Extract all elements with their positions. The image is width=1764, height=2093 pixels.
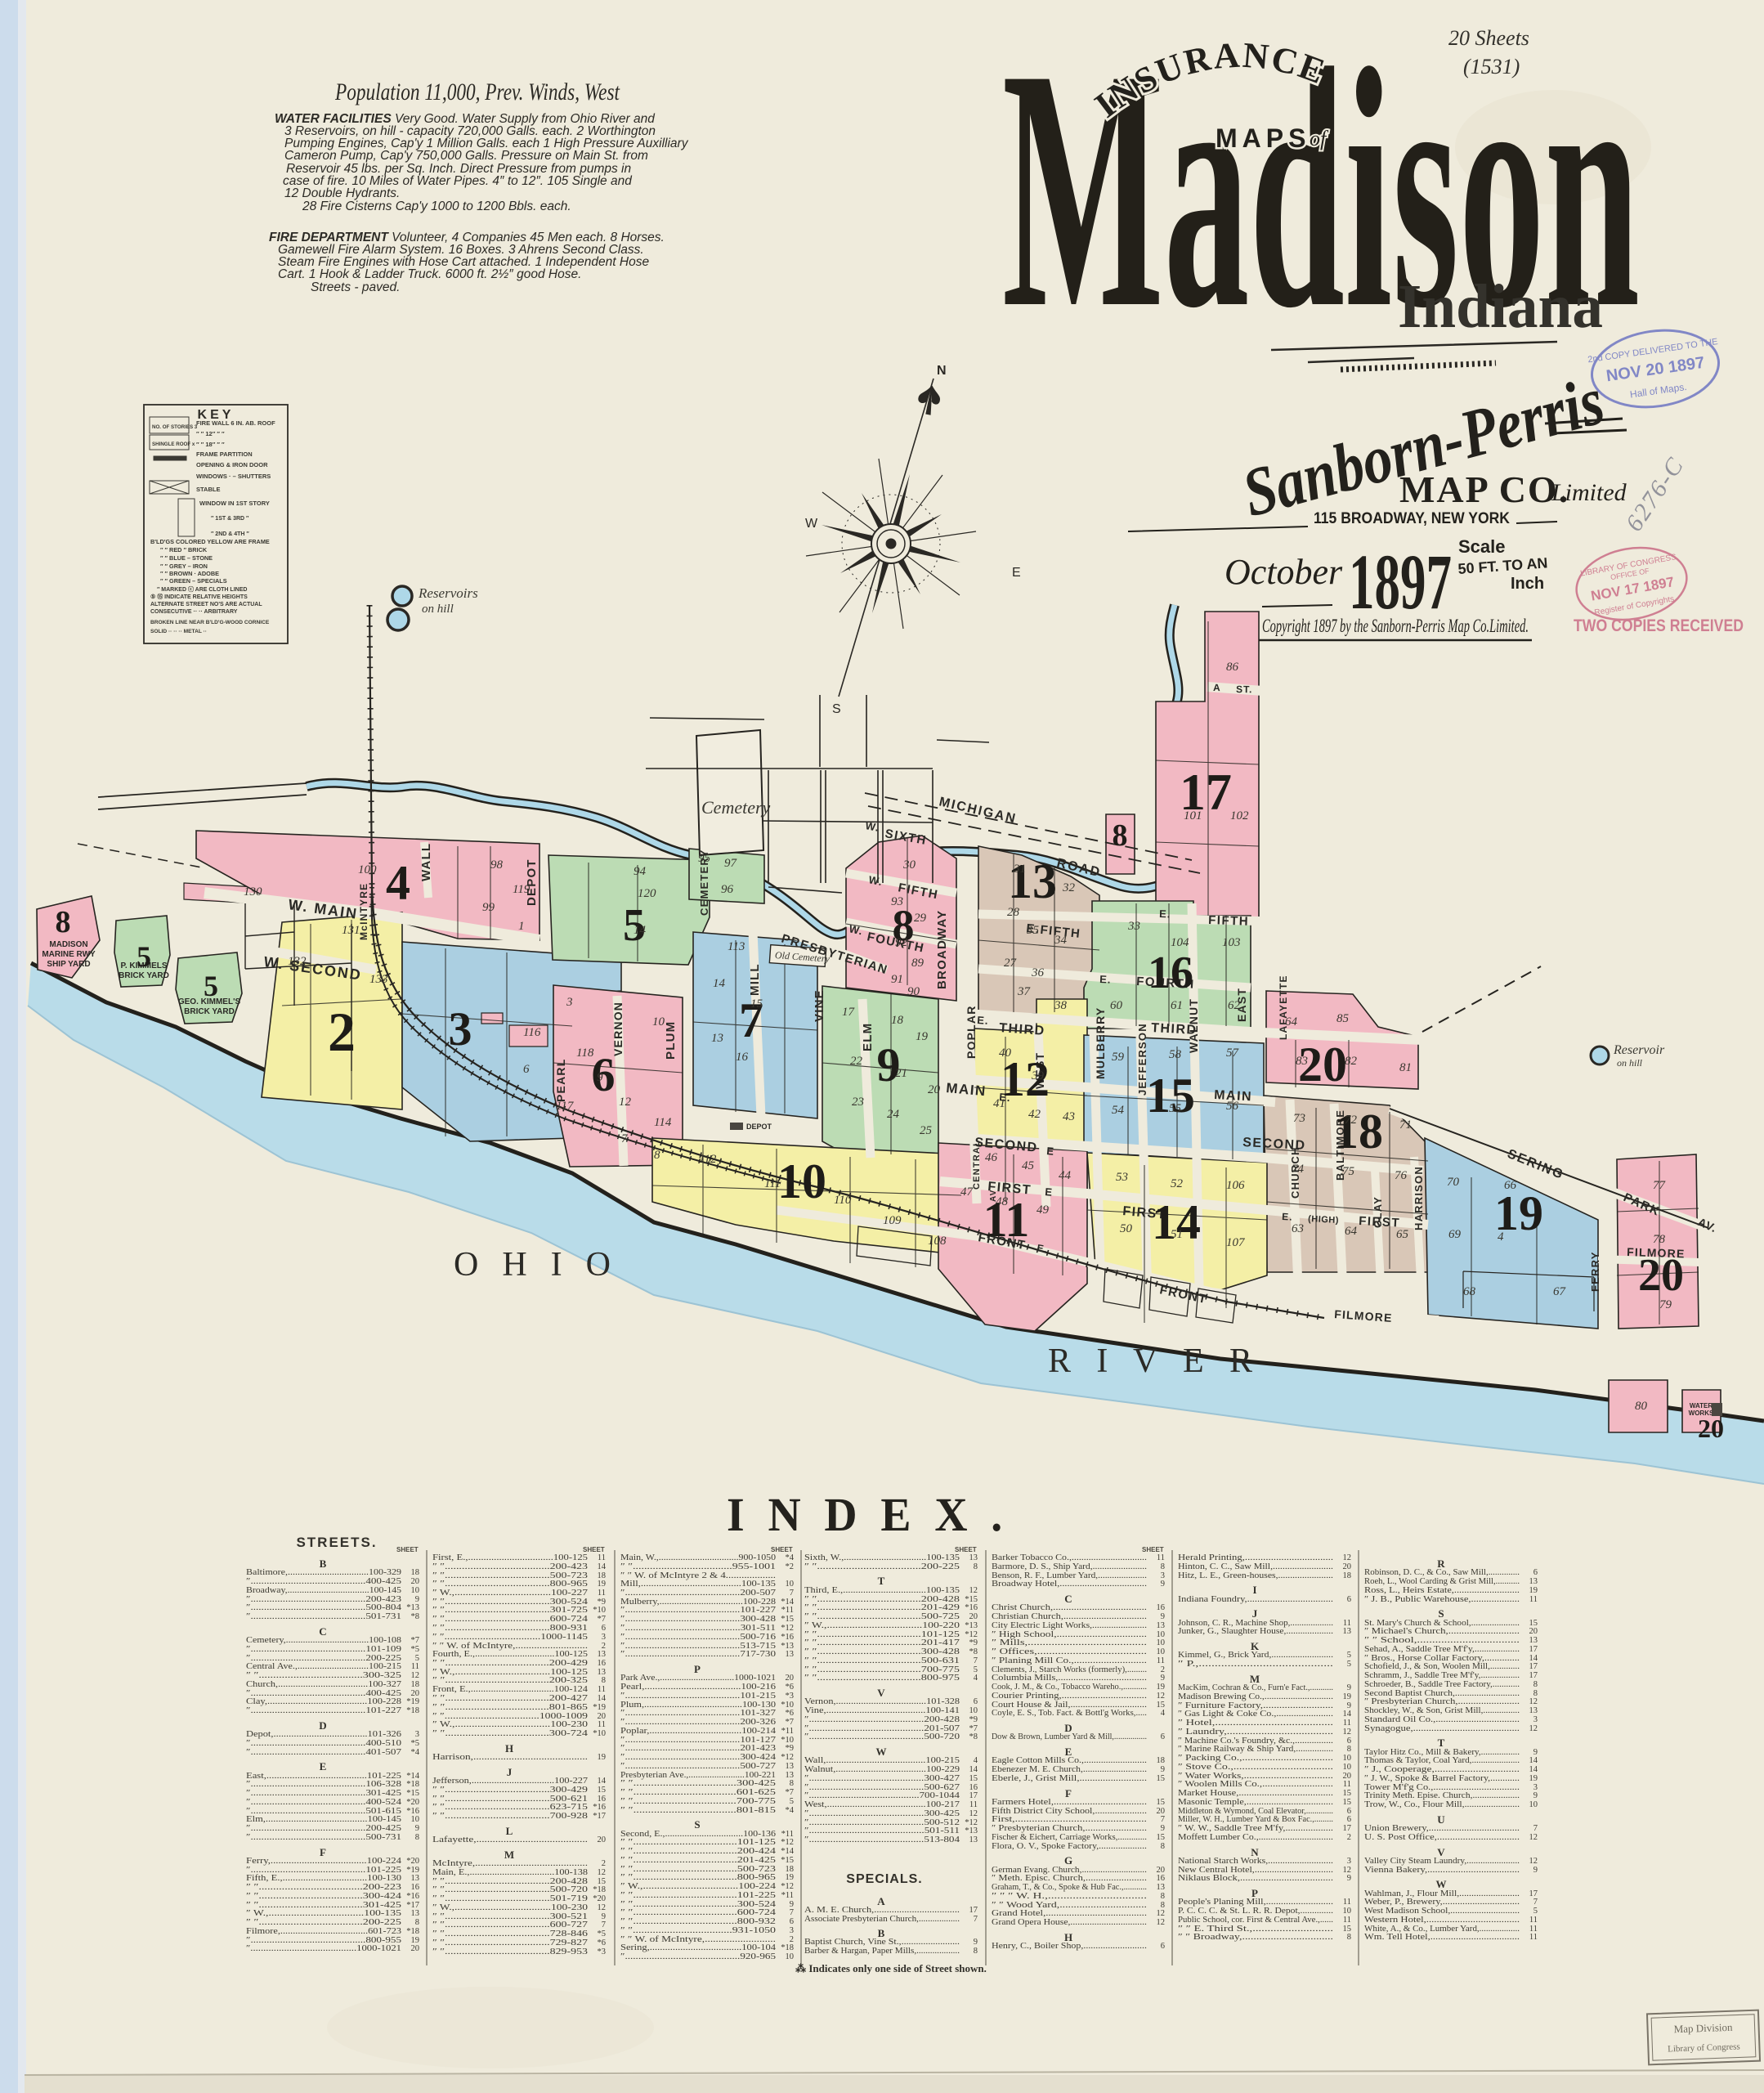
svg-text:70: 70 [1447,1176,1460,1189]
svg-text:15: 15 [1157,1833,1166,1842]
svg-text:Schroeder, B., Saddle Tree Fac: Schroeder, B., Saddle Tree Factory,.....… [1364,1680,1520,1689]
svg-text:10: 10 [1343,1763,1352,1772]
svg-text:*12: *12 [781,1882,794,1891]
svg-text:SHIP YARD: SHIP YARD [47,960,90,969]
svg-text:12: 12 [1343,1728,1352,1737]
svg-text:ST.: ST. [1236,683,1253,695]
svg-text:Market House,.................: Market House,...........................… [1178,1789,1333,1798]
svg-text:8: 8 [1113,818,1128,853]
svg-text:*8: *8 [411,1612,420,1621]
svg-text:on hill: on hill [422,603,454,616]
svg-text:11: 11 [1529,1916,1538,1925]
svg-text:*6: *6 [786,1709,795,1718]
svg-text:29: 29 [914,912,927,925]
svg-text:″ ″.........................: ″ ″....................................2… [804,1603,960,1612]
svg-text:Graham, T., & Co., Spoke & Hub: Graham, T., & Co., Spoke & Hub Fac.,....… [992,1883,1147,1892]
svg-text:42: 42 [1028,1108,1041,1121]
svg-text:*5: *5 [411,1645,420,1654]
svg-text:8: 8 [1161,1562,1165,1571]
svg-text:SHEET: SHEET [396,1546,419,1553]
svg-text:″.............................: ″.......................................… [620,1589,776,1598]
svg-text:″ ″ BROWN · ADOBE: ″ ″ BROWN · ADOBE [160,570,219,577]
svg-text:″ ″.........................: ″ ″....................................6… [620,1908,777,1917]
svg-text:*3: *3 [598,1947,607,1956]
svg-text:6: 6 [790,1917,794,1926]
svg-text:First,........................: First,..................................… [992,1815,1147,1824]
svg-text:″ ″.........................: ″ ″.....................................… [432,1624,588,1633]
svg-text:*6: *6 [786,1683,795,1692]
svg-text:14: 14 [634,924,647,937]
svg-text:9: 9 [597,1071,603,1084]
svg-text:″.............................: ″.......................................… [246,1833,401,1842]
svg-text:106: 106 [1226,1179,1245,1192]
svg-text:43: 43 [1063,1110,1075,1123]
svg-text:CONSECUTIVE ·· ·· AR: CONSECUTIVE ·· ·· ARBITRARY [150,609,238,615]
svg-text:*11: *11 [781,1606,794,1615]
svg-text:SHEET: SHEET [955,1546,977,1553]
svg-text:17: 17 [842,1006,856,1019]
svg-text:Cart. 1 Hook & Ladder Truck.: Cart. 1 Hook & Ladder Truck. 6000 ft. 2½… [278,267,581,281]
svg-text:McIntyre,.....................: McIntyre,...............................… [432,1859,588,1868]
svg-text:Valley City Steam Laundry,....: Valley City Steam Laundry,..............… [1364,1857,1520,1866]
svg-text:City Electric Light Works,....: City Electric Light Works,..............… [992,1621,1147,1630]
svg-text:15: 15 [1157,1798,1166,1807]
svg-text:E.: E. [1099,973,1112,986]
svg-text:9: 9 [415,1824,419,1833]
svg-text:17: 17 [969,1791,978,1800]
svg-text:*20: *20 [406,1798,419,1807]
svg-text:on hill: on hill [1617,1057,1643,1069]
svg-text:*19: *19 [593,1703,606,1712]
svg-text:17: 17 [969,1906,978,1915]
svg-text:8: 8 [1347,1745,1351,1754]
svg-text:52: 52 [1171,1177,1184,1190]
svg-text:W.: W. [864,819,880,834]
svg-text:46: 46 [985,1151,998,1164]
svg-text:15: 15 [598,1786,607,1795]
svg-text:12: 12 [1529,1833,1538,1842]
svg-text:10: 10 [786,1580,795,1589]
svg-text:U. S. Post Office,............: U. S. Post Office,......................… [1364,1833,1520,1842]
svg-text:″ W.,.......................: ″ W.,...................................… [432,1589,588,1598]
svg-text:″ ″.........................: ″ ″.....................................… [432,1615,589,1624]
svg-text:20: 20 [1343,1562,1352,1571]
svg-text:64: 64 [1345,1225,1358,1238]
svg-text:Dow & Brown, Lumber Yard & Mil: Dow & Brown, Lumber Yard & Mill,........… [992,1732,1147,1741]
svg-text:4: 4 [974,1674,978,1683]
svg-text:Wall,.........................: Wall,...................................… [804,1756,960,1765]
svg-text:10: 10 [777,1154,826,1208]
svg-text:E.: E. [977,1014,989,1027]
svg-text:5: 5 [1347,1660,1351,1669]
svg-text:A. M. E. Church,..............: A. M. E. Church,........................… [804,1906,960,1915]
svg-text:5: 5 [137,940,151,973]
svg-text:83: 83 [1296,1055,1308,1068]
svg-text:3: 3 [1533,1715,1538,1724]
svg-text:20: 20 [1638,1250,1684,1301]
svg-text:11: 11 [598,1685,606,1694]
svg-text:38: 38 [1054,999,1068,1012]
svg-text:Henry, C., Boiler Shop,.......: Henry, C., Boiler Shop,.................… [992,1942,1147,1951]
svg-text:W: W [805,517,818,531]
svg-text:11: 11 [1343,1719,1351,1728]
svg-text:24: 24 [887,1108,900,1121]
svg-text:″ P.,.......................: ″ P.,...................................… [1178,1660,1333,1669]
svg-text:130: 130 [244,885,262,899]
svg-text:″ Stove Co.,.................: ″ Stove Co.,............................… [1178,1763,1333,1772]
svg-text:13: 13 [598,1650,607,1659]
svg-text:54: 54 [1112,1104,1125,1117]
svg-text:8: 8 [974,1562,978,1571]
svg-text:Cemetery: Cemetery [701,797,771,818]
svg-text:″ ″........................: ″ ″...................................80… [620,1806,776,1815]
svg-text:2: 2 [328,1001,356,1063]
svg-text:″ Michael's Church,..........: ″ Michael's Church,.....................… [1364,1627,1520,1636]
svg-text:MARINE RWY: MARINE RWY [42,950,96,959]
svg-text:*7: *7 [598,1615,607,1624]
svg-text:18: 18 [1334,1105,1383,1159]
svg-text:6: 6 [592,1048,616,1101]
svg-text:A: A [1213,682,1221,693]
svg-text:113: 113 [728,940,745,953]
svg-text:″.............................: ″.......................................… [620,1762,776,1771]
svg-text:″ ″.........................: ″ ″...................................10… [432,1633,588,1642]
svg-text:*9: *9 [969,1715,978,1724]
svg-text:(HIGH): (HIGH) [1308,1214,1339,1226]
svg-text:8: 8 [654,1149,660,1162]
svg-text:Standard Oil Co.,.............: Standard Oil Co.,.......................… [1364,1715,1520,1724]
svg-text:E: E [1012,566,1021,580]
svg-text:″.............................: ″.......................................… [620,1709,776,1718]
svg-text:7: 7 [1161,1815,1165,1824]
svg-text:*18: *18 [781,1943,794,1952]
svg-text:19: 19 [1529,1774,1538,1783]
svg-text:20: 20 [786,1674,795,1683]
svg-text:Sixth, W.,....................: Sixth, W.,..............................… [804,1553,960,1562]
svg-text:7: 7 [790,1908,794,1917]
svg-text:11: 11 [1529,1933,1538,1942]
svg-text:95: 95 [698,852,711,865]
svg-text:″ ″.........................: ″ ″....................................3… [246,1892,402,1901]
svg-text:Reservoirs: Reservoirs [418,585,478,601]
svg-text:″ ″ GREY – IRON: ″ ″ GREY – IRON [160,562,208,570]
svg-text:″ 1ST & 3RD ″: ″ 1ST & 3RD ″ [211,516,249,522]
svg-text:*4: *4 [786,1806,795,1815]
svg-text:37: 37 [1017,985,1032,998]
svg-text:*16: *16 [965,1603,978,1612]
svg-text:13: 13 [1343,1627,1352,1636]
svg-text:14: 14 [598,1777,607,1786]
svg-text:12 Double Hydrants.: 12 Double Hydrants. [284,186,400,200]
svg-text:91: 91 [891,973,903,986]
svg-text:3: 3 [449,1002,472,1055]
svg-text:18: 18 [891,1014,904,1027]
svg-text:14: 14 [598,1694,607,1703]
svg-text:*3: *3 [786,1692,795,1701]
svg-text:″.............................: ″.......................................… [246,1944,401,1953]
svg-text:14: 14 [1152,1195,1201,1249]
svg-text:18: 18 [411,1568,420,1577]
svg-text:″.............................: ″.......................................… [246,1739,401,1748]
svg-text:25: 25 [920,1124,933,1137]
svg-text:″.............................: ″.......................................… [246,1789,401,1798]
svg-text:″ ″.........................: ″ ″....................................8… [620,1917,776,1926]
svg-text:Indiana: Indiana [1398,272,1603,341]
svg-text:″ W.,.......................: ″ W.,..................................1… [432,1720,588,1729]
svg-text:11: 11 [1157,1553,1165,1562]
svg-text:15: 15 [969,1774,978,1783]
svg-text:*11: *11 [781,1891,794,1900]
svg-text:109: 109 [883,1214,902,1227]
svg-text:″ ″.........................: ″ ″....................................8… [620,1873,776,1882]
svg-text:″.............................: ″.......................................… [804,1826,960,1835]
svg-text:OPENING & IRON DOOR: OPENING & IRON DOOR [196,461,268,468]
svg-text:MULBERRY: MULBERRY [1094,1007,1107,1079]
svg-text:102: 102 [1230,809,1249,822]
svg-text:West,.........................: West,...................................… [804,1800,960,1809]
svg-text:⁂ Indicates only one side of S: ⁂ Indicates only one side of Street show… [795,1962,987,1974]
svg-text:″ W.,.......................: ″ W.,..................................1… [620,1882,777,1891]
svg-text:″.............................: ″.......................................… [804,1774,960,1783]
svg-text:Central Ave.,.................: Central Ave.,...........................… [246,1662,401,1671]
svg-text:*4: *4 [411,1748,420,1757]
svg-text:″ W. W., Saddle Tree M'fy,...: ″ W. W., Saddle Tree M'fy,..............… [1178,1824,1333,1833]
svg-text:″ ″ RED ″ BRICK: ″ ″ RED ″ BRICK [160,546,208,554]
svg-text:103: 103 [1222,936,1241,949]
svg-text:94: 94 [634,865,647,878]
svg-text:17: 17 [1529,1671,1538,1680]
svg-text:″ J., Cooperage,.............: ″ J., Cooperage,........................… [1364,1765,1520,1774]
svg-text:40: 40 [999,1046,1012,1060]
svg-text:″ ″.........................: ″ ″....................................2… [432,1659,588,1668]
svg-text:61: 61 [1171,999,1183,1012]
svg-text:Flora, O. V., Spoke Factory,..: Flora, O. V., Spoke Factory,............… [992,1842,1147,1851]
svg-text:″ J. B., Public Warehouse,...: ″ J. B., Public Warehouse,..............… [1364,1595,1520,1604]
svg-text:112: 112 [699,1153,717,1166]
svg-text:Harrison,.....................: Harrison,...............................… [432,1753,588,1762]
svg-text:T: T [1438,1737,1445,1749]
svg-text:72: 72 [1345,1114,1358,1127]
svg-text:Fifth, E.,....................: Fifth, E.,..............................… [246,1874,401,1883]
svg-text:16: 16 [1157,1874,1166,1883]
svg-text:People's Planing Mill,........: People's Planing Mill,..................… [1178,1898,1333,1907]
svg-text:Weber, P., Brewery,...........: Weber, P., Brewery,.....................… [1364,1898,1520,1907]
svg-text:Grand Hotel,..................: Grand Hotel,............................… [992,1909,1147,1918]
svg-text:7: 7 [1533,1824,1538,1833]
svg-text:″.............................: ″.......................................… [620,1718,776,1727]
svg-text:76: 76 [1395,1169,1408,1182]
svg-text:*11: *11 [781,1727,794,1736]
svg-text:*13: *13 [965,1826,978,1835]
svg-text:41: 41 [993,1097,1005,1110]
svg-text:G: G [1064,1854,1072,1867]
svg-text:Filmore,......................: Filmore,................................… [246,1927,401,1936]
svg-text:3: 3 [1347,1857,1351,1866]
svg-text:69: 69 [1448,1228,1462,1241]
svg-text:*14: *14 [781,1847,795,1856]
svg-text:Western Hotel,................: Western Hotel,..........................… [1364,1916,1520,1925]
svg-text:110: 110 [834,1194,852,1207]
svg-text:Eberle, J., Grist Mill,.......: Eberle, J., Grist Mill,.................… [992,1774,1147,1783]
svg-text:28: 28 [1007,906,1020,919]
svg-text:E: E [1045,1185,1054,1199]
svg-text:57: 57 [1226,1046,1240,1060]
svg-text:*12: *12 [781,1624,794,1633]
svg-text:S: S [694,1818,700,1831]
svg-text:Front, E.,....................: Front, E.,..............................… [432,1685,589,1694]
svg-text:9: 9 [877,1038,901,1091]
svg-text:14: 14 [713,977,726,990]
svg-text:8: 8 [415,1833,419,1842]
svg-text:″ ″.........................: ″ ″.....................................… [432,1812,588,1821]
svg-text:DEPOT: DEPOT [746,1123,772,1131]
svg-text:80: 80 [1635,1400,1648,1413]
svg-text:77: 77 [1653,1179,1667,1192]
svg-text:Sering,.......................: Sering,.................................… [620,1943,777,1952]
svg-text:2: 2 [602,1859,606,1868]
svg-text:Walnut,.......................: Walnut,.................................… [804,1765,960,1774]
svg-text:5: 5 [1533,1907,1538,1916]
svg-text:BROADWAY: BROADWAY [935,910,949,989]
svg-text:″ ″.........................: ″ ″....................................8… [804,1674,960,1683]
svg-text:14: 14 [1529,1756,1538,1765]
svg-text:64: 64 [1285,1015,1298,1029]
svg-text:Third, E.,....................: Third, E.,..............................… [804,1586,960,1595]
svg-text:18: 18 [411,1680,420,1689]
svg-text:14: 14 [969,1765,978,1774]
svg-text:10: 10 [411,1586,420,1595]
svg-text:Main, E.,.....................: Main, E.,...............................… [432,1868,588,1877]
svg-text:FIFTH: FIFTH [1208,913,1250,929]
svg-text:16: 16 [598,1659,607,1668]
svg-text:9: 9 [1347,1874,1351,1883]
svg-text:Schramm, J., Saddle Tree M'f'y: Schramm, J., Saddle Tree M'f'y,.........… [1364,1671,1520,1680]
svg-text:Thomas & Taylor, Coal Yard,...: Thomas & Taylor, Coal Yard,.............… [1364,1756,1520,1765]
svg-text:″ ″ School,................: ″ ″ School,.............................… [1364,1636,1520,1645]
svg-text:Cook, J. M., & Co., Tobacco Wa: Cook, J. M., & Co., Tobacco Wareho.,....… [992,1683,1147,1692]
svg-text:SHEET: SHEET [1142,1546,1164,1553]
svg-text:″.............................: ″.......................................… [246,1577,401,1586]
svg-text:33: 33 [1127,920,1140,933]
svg-text:9: 9 [1533,1866,1538,1875]
svg-text:12: 12 [1529,1724,1538,1733]
svg-text:*16: *16 [593,1803,606,1812]
svg-text:28 Fire Cisterns Cap'y 1000 to: 28 Fire Cisterns Cap'y 1000 to 1200 Bbls… [302,199,571,213]
svg-text:Main, W.,.....................: Main, W.,...............................… [620,1553,776,1562]
svg-text:″ ″.........................: ″ ″.....................................… [432,1938,588,1947]
svg-text:12: 12 [619,1096,632,1109]
svg-text:16: 16 [736,1051,749,1064]
svg-text:9: 9 [1347,1683,1351,1692]
svg-text:″ ″ 18″ ″ ″: ″ ″ 18″ ″ ″ [196,441,225,448]
svg-text:″ Marine Railway & Ship Yard,: ″ Marine Railway & Ship Yard,...........… [1178,1745,1333,1754]
svg-text:″ 2ND & 4TH ″: ″ 2ND & 4TH ″ [211,531,249,537]
svg-text:Cameron Pump, Cap'y 750,000 Ga: Cameron Pump, Cap'y 750,000 Galls. Press… [284,149,648,163]
svg-text:*12: *12 [781,1838,794,1847]
svg-text:″ ″........................: ″ ″...................................70… [620,1797,776,1806]
svg-text:POPLAR: POPLAR [965,1005,978,1059]
svg-text:59: 59 [1112,1051,1125,1064]
svg-text:″ ″.........................: ″ ″.....................................… [432,1580,588,1589]
svg-text:CENTRAL: CENTRAL [972,1140,982,1190]
svg-text:51: 51 [1171,1228,1183,1241]
svg-text:8: 8 [790,1779,794,1788]
svg-text:WATER: WATER [1690,1402,1713,1410]
svg-text:Lafayette,....................: Lafayette,..............................… [432,1835,588,1844]
svg-text:Ferry,........................: Ferry,..................................… [246,1857,402,1866]
svg-text:92: 92 [895,936,908,949]
svg-text:Mill,.........................: Mill,...................................… [620,1580,776,1589]
svg-text:Robinson, D. C., & Co., Saw Mi: Robinson, D. C., & Co., Saw Mill,.......… [1364,1568,1520,1577]
svg-text:97: 97 [724,857,738,870]
svg-text:101: 101 [1184,809,1202,822]
svg-text:13: 13 [786,1762,795,1771]
svg-text:E: E [320,1760,327,1773]
svg-text:″.............................: ″.......................................… [246,1748,401,1757]
svg-text:Ebenezer M. E. Church,........: Ebenezer M. E. Church,..................… [992,1765,1147,1774]
svg-text:89: 89 [911,957,925,970]
svg-text:6: 6 [1347,1595,1351,1604]
svg-text:20: 20 [411,1944,420,1953]
svg-text:35: 35 [1026,924,1040,937]
svg-text:″.............................: ″.......................................… [620,1744,776,1753]
svg-text:120: 120 [638,887,656,900]
svg-text:Masonic Temple,...............: Masonic Temple,.........................… [1178,1798,1333,1807]
svg-text:″ Packing Co.,...............: ″ Packing Co.,..........................… [1178,1754,1333,1763]
svg-text:14: 14 [598,1562,607,1571]
svg-text:″ Presbyterian Church,.......: ″ Presbyterian Church,..................… [992,1824,1147,1833]
svg-text:Jefferson,....................: Jefferson,..............................… [432,1777,588,1786]
svg-text:Wm. Tell Hotel,...............: Wm. Tell Hotel,.........................… [1364,1933,1520,1942]
svg-text:10: 10 [969,1706,978,1715]
svg-text:″ Hotel,.....................: ″ Hotel,................................… [1178,1719,1333,1728]
svg-text:16: 16 [1148,948,1193,998]
svg-text:58: 58 [1169,1048,1182,1061]
svg-text:″ Meth. Episc. Church,.......: ″ Meth. Episc. Church,..................… [992,1874,1147,1883]
svg-text:10: 10 [786,1952,795,1961]
svg-text:″ J. W., Spoke & Barrel Facto: ″ J. W., Spoke & Barrel Factory,........… [1364,1774,1520,1783]
svg-text:″ ″.........................: ″ ″....................................2… [620,1847,777,1856]
svg-text:20: 20 [1698,1414,1724,1443]
svg-text:MADISON: MADISON [49,940,87,949]
svg-text:SHEET: SHEET [583,1546,605,1553]
svg-text:″ ″.........................: ″ ″....................................8… [432,1703,588,1712]
svg-text:″.............................: ″.......................................… [804,1791,960,1800]
svg-text:″.............................: ″.......................................… [246,1603,402,1612]
svg-text:Schofield, J., & Son, Woolen M: Schofield, J., & Son, Woolen Mill,......… [1364,1662,1520,1671]
svg-text:Union Brewery,................: Union Brewery,..........................… [1364,1824,1520,1833]
svg-text:″ ″.........................: ″ ″....................................5… [804,1656,960,1665]
svg-text:Limited: Limited [1551,479,1627,506]
svg-text:45: 45 [1022,1159,1035,1172]
svg-text:12: 12 [969,1586,978,1595]
svg-text:″ ″.........................: ″ ″.....................................… [432,1885,588,1894]
svg-text:8: 8 [974,1947,978,1956]
svg-text:7: 7 [1533,1898,1538,1907]
svg-text:″ Offices,...................: ″ Offices,..............................… [992,1647,1147,1656]
svg-text:″ ″.........................: ″ ″....................................2… [246,1883,401,1892]
svg-text:8: 8 [1161,1842,1165,1851]
svg-text:Grand Opera House,............: Grand Opera House,......................… [992,1918,1147,1927]
svg-text:″ ″.........................: ″ ″....................................3… [804,1647,960,1656]
svg-text:*7: *7 [786,1718,795,1727]
svg-text:E.: E. [1036,1242,1049,1255]
svg-text:81: 81 [1399,1061,1412,1074]
svg-text:″ ″.........................: ″ ″....................................2… [804,1562,960,1571]
svg-text:96: 96 [721,883,734,896]
svg-text:First, E.,....................: First, E.,..............................… [432,1553,588,1562]
svg-text:INDEX.: INDEX. [727,1488,1026,1541]
